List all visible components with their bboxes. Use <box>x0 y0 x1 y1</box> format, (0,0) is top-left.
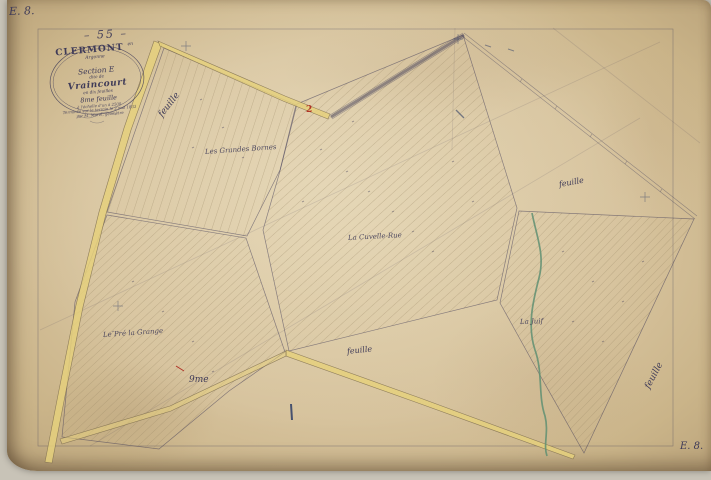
parcel-block-east <box>500 211 694 453</box>
parcel-block-central <box>263 35 517 351</box>
lieu-dit-la-juif: La Juif <box>520 318 543 326</box>
corner-label-bottom-right: E. 8. <box>680 442 703 452</box>
blue-dash-mark <box>291 404 292 420</box>
blue-notes-mark <box>485 45 514 51</box>
parcel-blocks <box>62 35 694 453</box>
road-south <box>286 350 575 459</box>
parcel-number-red-2: 2 <box>306 106 312 115</box>
road-number-9: 9me <box>189 376 209 385</box>
corner-label-top-left: E. 8. <box>9 5 35 17</box>
cadastral-map-sheet: – 55 – E. 8. E. 8. CLERMONT en Argonne S… <box>0 0 711 480</box>
cartouche: CLERMONT en Argonne Section E dite de Vr… <box>47 41 147 119</box>
sheet-stamp: – 55 – <box>84 28 129 41</box>
